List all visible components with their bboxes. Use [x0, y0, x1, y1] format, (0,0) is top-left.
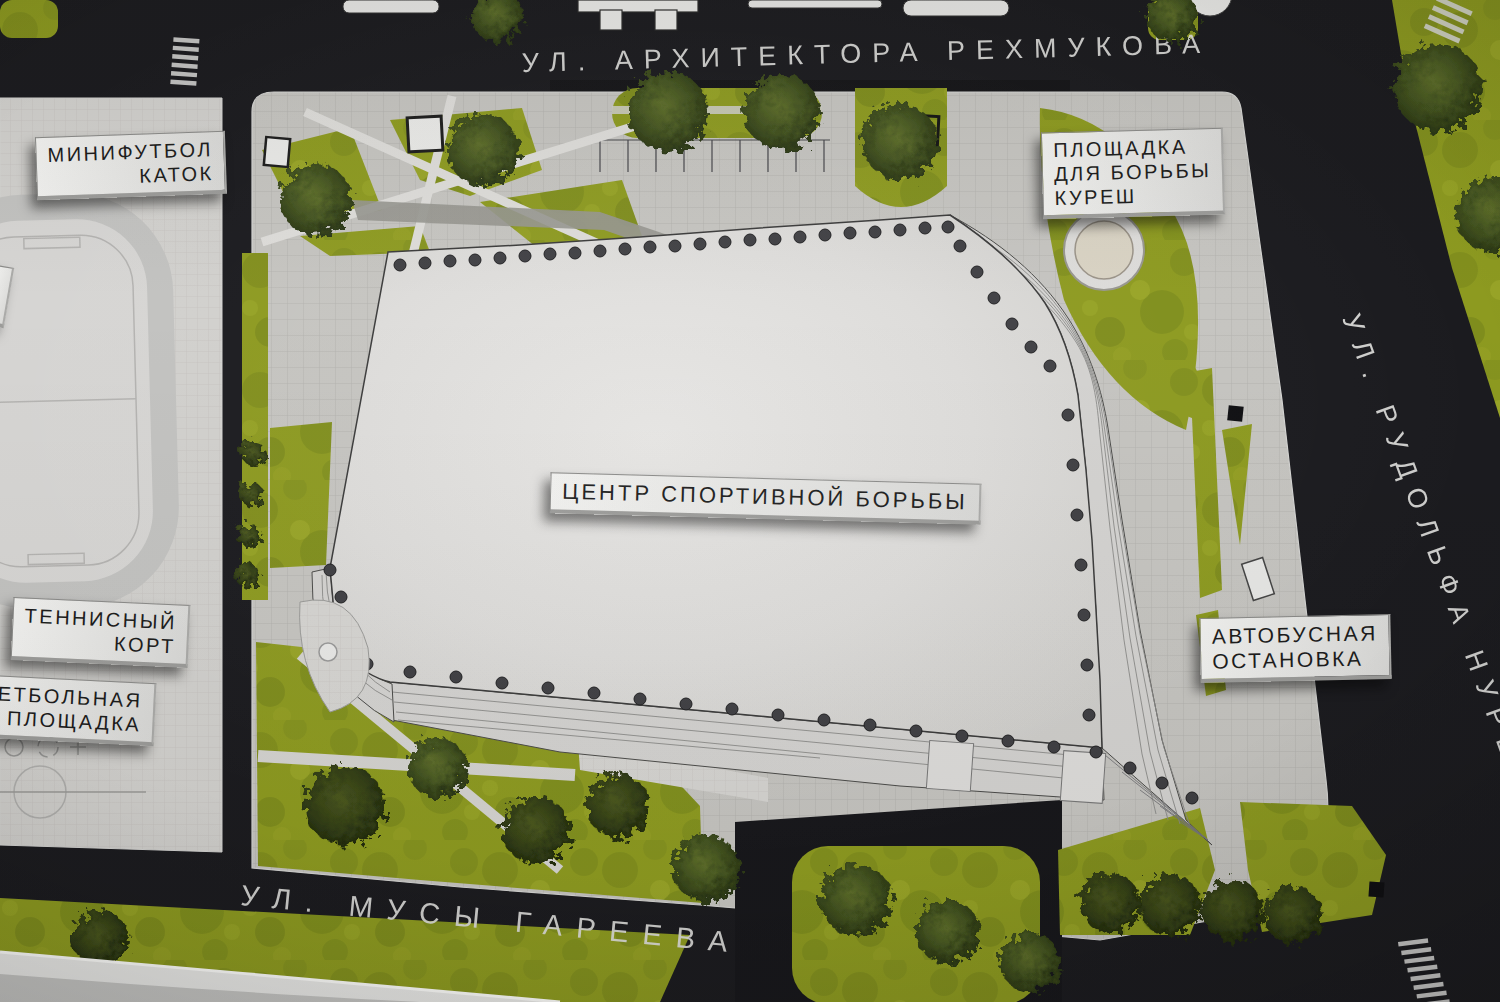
- label-minifootball-rink: МИНИФУТБОЛ КАТОК: [35, 131, 228, 201]
- label-kuresh-area: ПЛОЩАДКА ДЛЯ БОРЬБЫ КУРЕШ: [1041, 128, 1226, 220]
- label-line: КУРЕШ: [1054, 182, 1212, 210]
- label-line: ДЛЯ БОРЬБЫ: [1054, 158, 1212, 186]
- west-green-patch: [270, 422, 332, 568]
- kiosk-mark: [1227, 405, 1243, 421]
- pavilion-small: [264, 137, 290, 167]
- label-tennis-court: ТЕННИСНЫЙ КОРТ: [11, 597, 191, 668]
- label-bus-stop: АВТОБУСНАЯ ОСТАНОВКА: [1199, 614, 1391, 683]
- label-line: АВТОБУСНАЯ: [1211, 620, 1377, 649]
- label-line: ОСТАНОВКА: [1212, 645, 1378, 674]
- pavilion-square: [407, 116, 443, 152]
- mini-football-rink: [0, 191, 181, 611]
- label-line: ЦЕНТР СПОРТИВНОЙ БОРЬБЫ: [562, 479, 968, 516]
- label-basketball-court: КЕТБОЛЬНАЯ ПЛОЩАДКА: [0, 673, 156, 746]
- site-plan-photo: УЛ. АРХИТЕКТОРА РЕХМУКОВА УЛ. МУСЫ ГАРЕЕ…: [0, 0, 1500, 1002]
- roadside-green-strip: [242, 253, 268, 600]
